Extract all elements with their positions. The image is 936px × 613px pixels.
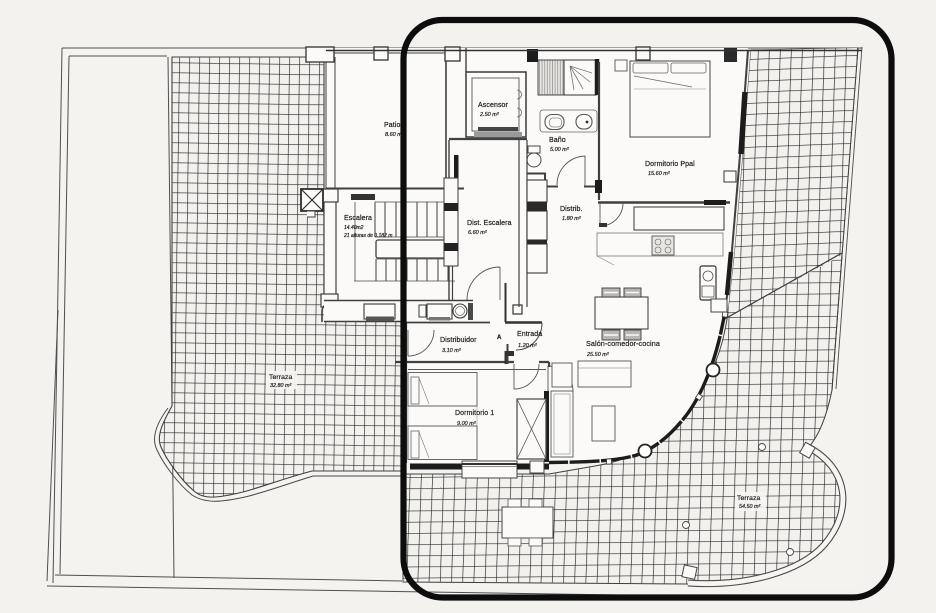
svg-text:Escalera: Escalera (344, 215, 372, 222)
svg-text:15.60 m²: 15.60 m² (648, 171, 670, 177)
svg-text:Dist. Escalera: Dist. Escalera (467, 220, 512, 227)
svg-text:Salón-comedor-cocina: Salón-comedor-cocina (586, 339, 660, 348)
svg-text:Terraza: Terraza (737, 495, 760, 502)
svg-text:1.80 m²: 1.80 m² (562, 216, 581, 222)
svg-text:32.80 m²: 32.80 m² (270, 383, 291, 389)
svg-text:Distrib.: Distrib. (560, 206, 583, 213)
svg-text:5.00 m²: 5.00 m² (550, 147, 569, 153)
svg-text:Baño: Baño (549, 137, 566, 144)
svg-text:6.60 m²: 6.60 m² (468, 230, 487, 236)
svg-text:25.50 m²: 25.50 m² (586, 352, 609, 358)
svg-text:Terraza: Terraza (269, 374, 292, 381)
svg-text:21 alturas de 0.182 m: 21 alturas de 0.182 m (343, 233, 392, 239)
svg-text:A: A (497, 335, 502, 341)
svg-text:14.40m2: 14.40m2 (344, 225, 364, 231)
svg-text:9.00 m²: 9.00 m² (457, 421, 476, 427)
svg-text:2.50 m²: 2.50 m² (479, 112, 499, 118)
svg-text:Patio: Patio (384, 122, 400, 129)
svg-text:54.50 m²: 54.50 m² (739, 504, 760, 510)
svg-text:Entrada: Entrada (517, 331, 542, 338)
svg-text:Ascensor: Ascensor (478, 102, 509, 109)
svg-text:1.20 m²: 1.20 m² (518, 343, 537, 349)
svg-text:3.10 m²: 3.10 m² (442, 348, 461, 354)
svg-text:Dormitorio Ppal: Dormitorio Ppal (645, 161, 695, 168)
svg-text:Distribuidor: Distribuidor (440, 337, 477, 344)
svg-text:Dormitorio 1: Dormitorio 1 (455, 410, 494, 417)
